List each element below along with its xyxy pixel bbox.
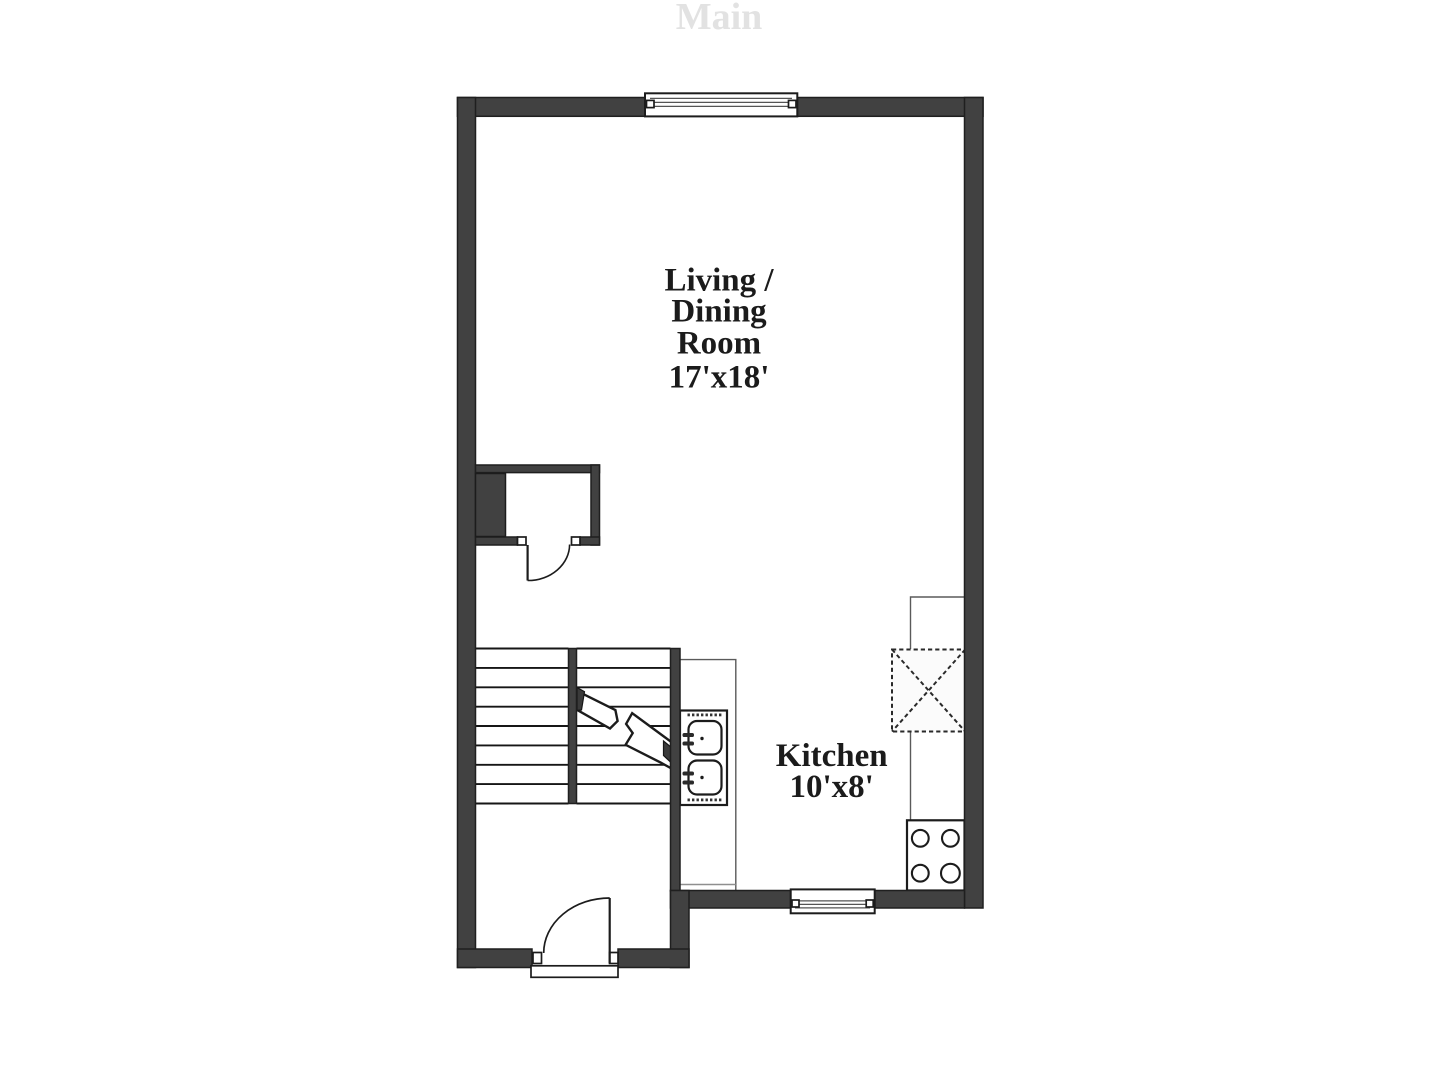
svg-text:17'x18': 17'x18' <box>669 360 770 396</box>
svg-text:10'x8': 10'x8' <box>790 769 874 805</box>
svg-text:Room: Room <box>677 326 761 362</box>
svg-text:Dining: Dining <box>671 294 767 330</box>
svg-text:Main: Main <box>676 0 763 38</box>
